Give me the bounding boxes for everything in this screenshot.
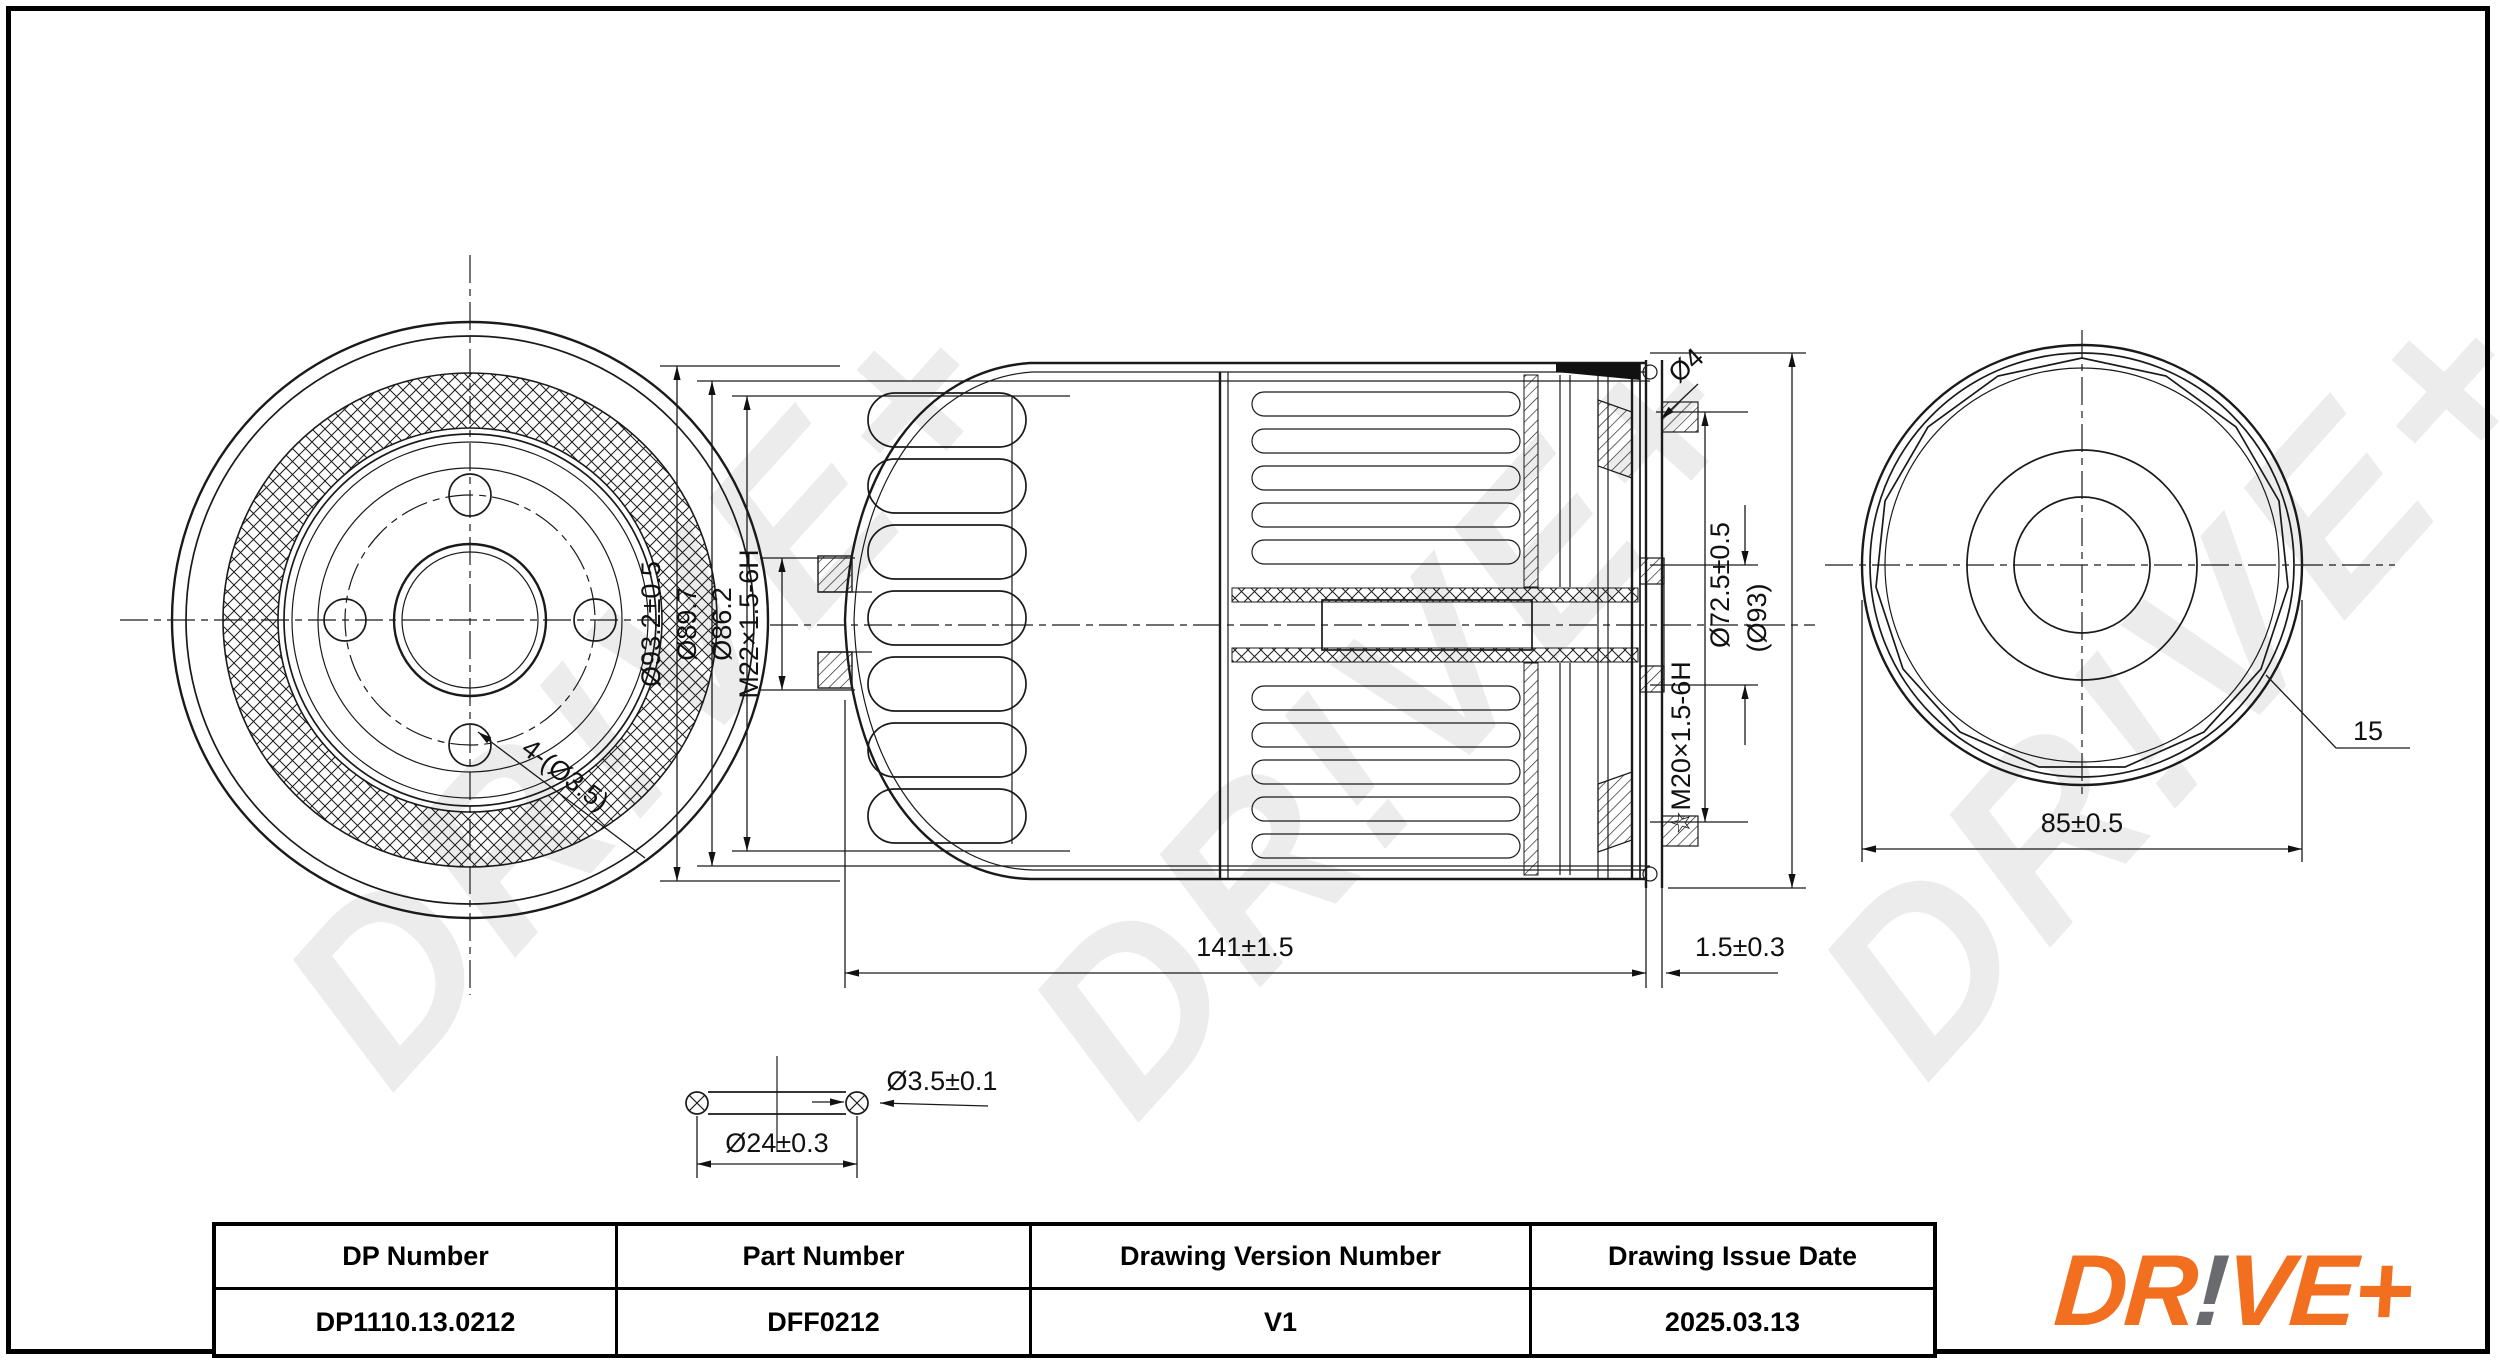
across-flats-label: 85±0.5 — [2041, 808, 2123, 838]
logo-text-suffix: VE+ — [2221, 1234, 2414, 1349]
title-block-value-part-number: DFF0212 — [618, 1290, 1032, 1354]
title-block-header-part-number: Part Number — [618, 1226, 1032, 1290]
length-dimensions: 141±1.5 1.5±0.3 — [845, 700, 1785, 988]
seal-dia-label: Ø72.5±0.5 — [1705, 522, 1735, 648]
title-block-value-version: V1 — [1032, 1290, 1532, 1354]
oring-cs-label: Ø3.5±0.1 — [887, 1066, 998, 1096]
cross-section-view: Ø93.2±0.5 Ø89.7 Ø86.2 M22×1.5-6H Ø — [636, 342, 1815, 988]
title-block: DP Number Part Number Drawing Version Nu… — [212, 1222, 1937, 1358]
brand-logo: DR!VE+ — [1971, 1236, 2494, 1346]
bead-dia-label: Ø4 — [1663, 342, 1710, 388]
diameter-dimensions: Ø93.2±0.5 Ø89.7 Ø86.2 — [636, 366, 1650, 881]
oring-id-label: Ø24±0.3 — [725, 1128, 828, 1158]
cap-end-view: 15 85±0.5 — [1825, 330, 2410, 862]
flats-leader — [2266, 675, 2410, 748]
title-block-header-issue-date: Drawing Issue Date — [1532, 1226, 1933, 1290]
oring-cs-leader — [880, 1103, 988, 1106]
length-label: 141±1.5 — [1196, 932, 1293, 962]
dim-shell-diameter: Ø89.7 — [672, 587, 702, 661]
inlet-thread-label: M22×1.5-6H — [734, 549, 764, 698]
ref-dia-label: (Ø93) — [1742, 583, 1772, 652]
outlet-thread-dimension: ☆M20×1.5-6H — [1650, 505, 1758, 835]
drawing-sheet: DR!VE+ DR!VE+ DR!VE+ — [0, 0, 2500, 1362]
gasket-thickness-label: 1.5±0.3 — [1695, 932, 1785, 962]
dim-body-diameter: Ø86.2 — [707, 587, 737, 661]
lower-endcap-band — [1232, 648, 1638, 662]
lower-pleat-block — [1252, 663, 1570, 875]
logo-text-prefix: DR — [2051, 1234, 2199, 1349]
lower-seal — [1598, 772, 1632, 852]
title-block-value-dp-number: DP1110.13.0212 — [216, 1290, 618, 1354]
title-block-header-dp-number: DP Number — [216, 1226, 618, 1290]
fifteen-flats-polygon — [1876, 358, 2288, 767]
flats-count-label: 15 — [2353, 716, 2383, 746]
seal-diameter-dimension: Ø72.5±0.5 — [1650, 412, 1748, 822]
dome-flutes — [868, 393, 1026, 844]
outlet-thread-label: ☆M20×1.5-6H — [1666, 661, 1696, 835]
oring-detail: Ø24±0.3 Ø3.5±0.1 — [686, 1056, 997, 1178]
title-block-value-issue-date: 2025.03.13 — [1532, 1290, 1933, 1354]
upper-pleat-block — [1252, 375, 1570, 587]
upper-seal — [1598, 400, 1632, 478]
title-block-header-version: Drawing Version Number — [1032, 1226, 1532, 1290]
dim-outer-diameter: Ø93.2±0.5 — [636, 561, 666, 687]
technical-drawing-canvas: 4-(Ø3.5) — [0, 0, 2500, 1362]
